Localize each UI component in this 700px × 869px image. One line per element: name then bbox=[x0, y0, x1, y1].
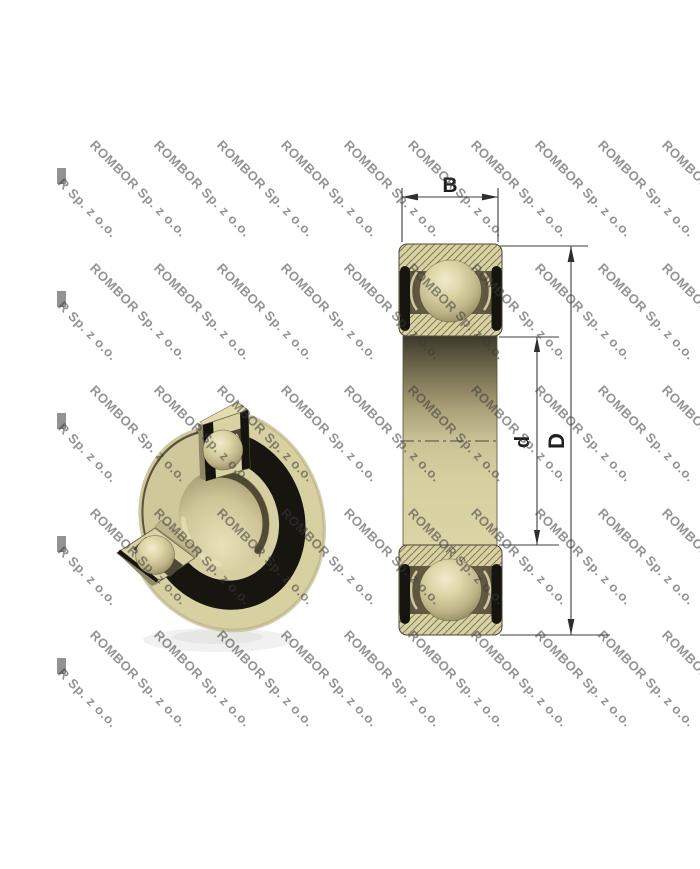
cross-section-view: B D d bbox=[399, 174, 610, 635]
bearing-drawing-page: B D d R Sp. z o.o.ROMBOR Sp. z o.o.ROMBO… bbox=[0, 0, 700, 869]
bearing-ball bbox=[420, 260, 482, 322]
dimension-label-b: B bbox=[442, 174, 457, 197]
bearing-ball bbox=[136, 536, 175, 575]
dimension-label-d-bore: d bbox=[512, 436, 534, 448]
seal-right bbox=[492, 266, 502, 331]
seal-left bbox=[400, 564, 410, 624]
iso-cutaway-view bbox=[98, 391, 356, 659]
bearing-diagram-svg: B D d bbox=[0, 0, 700, 869]
seal-right bbox=[492, 564, 502, 624]
bearing-ball bbox=[420, 559, 482, 621]
bearing-ball bbox=[203, 430, 243, 470]
dimension-label-d-outer: D bbox=[544, 433, 569, 449]
section-bottom-ring bbox=[399, 545, 502, 635]
section-top-ring bbox=[399, 244, 502, 336]
top-cut-block bbox=[198, 402, 250, 481]
seal-left bbox=[400, 266, 410, 331]
